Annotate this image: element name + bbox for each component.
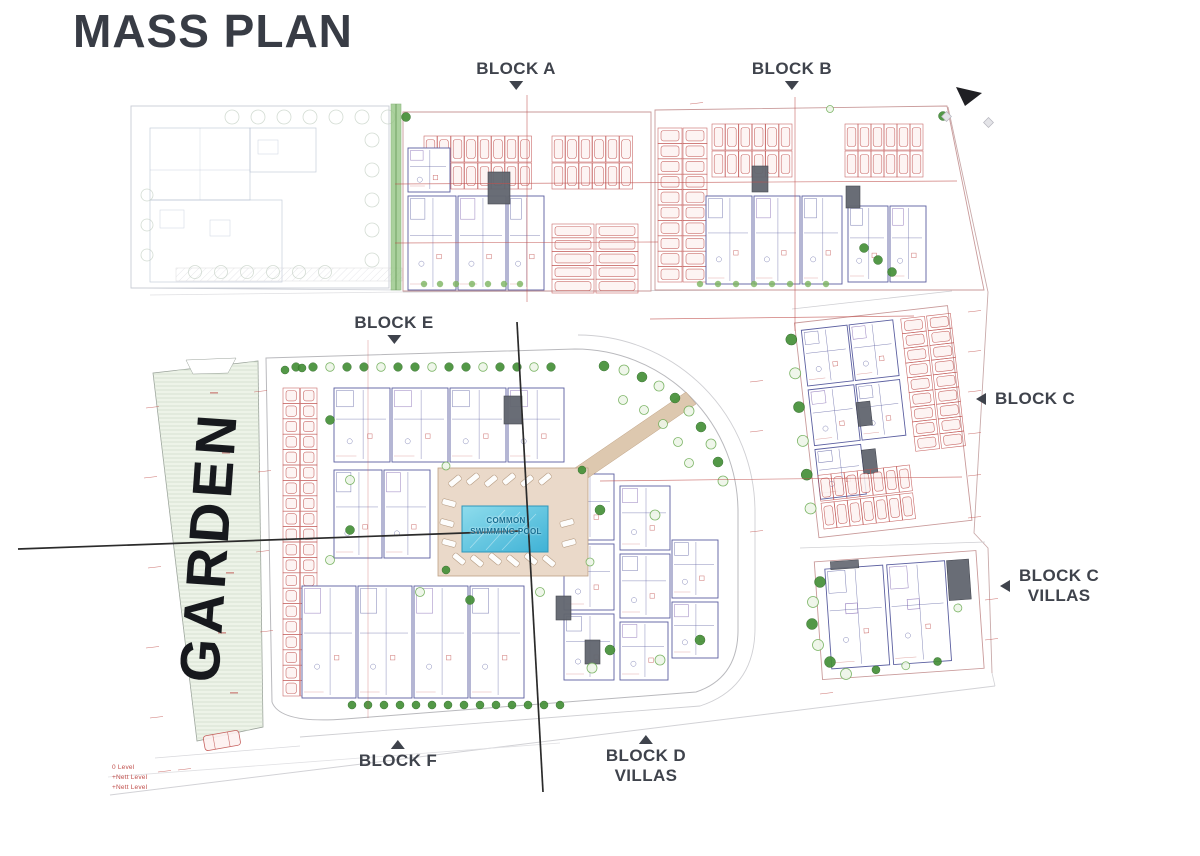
level-note-line: +Nett Level xyxy=(112,783,147,793)
level-note-line: +Nett Level xyxy=(112,773,147,783)
block-b-text: BLOCK B xyxy=(752,59,832,78)
block-a-label: BLOCK A xyxy=(476,59,556,90)
adjacent-plot-faint xyxy=(131,104,402,290)
block-d-text-2: VILLAS xyxy=(606,766,686,786)
block-c-villas-text-2: VILLAS xyxy=(1019,586,1099,606)
block-c-text: BLOCK C xyxy=(995,389,1075,409)
block-e-down-arrow-icon xyxy=(387,335,401,344)
pool-text-1: COMMON xyxy=(470,516,541,527)
block-f-label: BLOCK F xyxy=(359,740,437,771)
block-a-plan xyxy=(402,112,652,293)
mass-plan-page: MASS PLAN BLOCK A BLOCK B BLOCK E BLOCK … xyxy=(0,0,1200,856)
page-title: MASS PLAN xyxy=(73,4,353,58)
block-c-villas-text-1: BLOCK C xyxy=(1019,566,1099,586)
block-d-text-1: BLOCK D xyxy=(606,746,686,766)
level-note-line: 0 Level xyxy=(112,763,147,773)
level-note: 0 Level +Nett Level +Nett Level xyxy=(112,763,147,792)
block-b-down-arrow-icon xyxy=(785,81,799,90)
block-e-text: BLOCK E xyxy=(354,313,433,332)
block-e-label: BLOCK E xyxy=(354,313,433,344)
block-a-text: BLOCK A xyxy=(476,59,556,78)
block-a-down-arrow-icon xyxy=(509,81,523,90)
block-c-villas-label: BLOCK C VILLAS xyxy=(1000,566,1099,605)
block-c-villas-plan xyxy=(814,551,984,680)
block-d-villas-label: BLOCK D VILLAS xyxy=(606,735,686,785)
block-c-left-arrow-icon xyxy=(976,393,986,405)
swimming-pool-label: COMMON SWIMMING POOL xyxy=(470,516,541,538)
block-c-label: BLOCK C xyxy=(976,389,1075,409)
block-d-up-arrow-icon xyxy=(639,735,653,744)
block-c-villas-left-arrow-icon xyxy=(1000,580,1010,592)
block-f-text: BLOCK F xyxy=(359,751,437,770)
block-b-label: BLOCK B xyxy=(752,59,832,90)
pool-text-2: SWIMMING POOL xyxy=(470,527,541,538)
block-b-plan xyxy=(655,106,984,291)
block-f-up-arrow-icon xyxy=(391,740,405,749)
site-plan-drawing xyxy=(0,0,1200,856)
block-c-plan xyxy=(784,305,974,538)
